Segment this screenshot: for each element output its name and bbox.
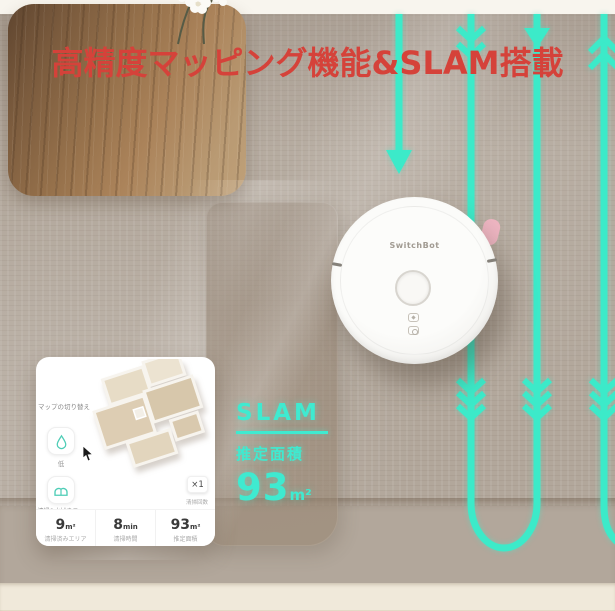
- robot-brand-label: SwitchBot: [331, 241, 498, 250]
- slam-area-unit: m²: [290, 486, 312, 504]
- slam-heading: SLAM: [236, 400, 328, 426]
- mop-mode-button[interactable]: [47, 476, 75, 504]
- stat-clean-time: 8min 清掃時間: [95, 510, 155, 546]
- stat-unit: min: [123, 523, 138, 531]
- slam-area-value: 93: [236, 466, 290, 509]
- clean-count-label: 清掃回数: [175, 498, 219, 506]
- robot-vacuum: SwitchBot: [331, 197, 498, 364]
- power-icon: [408, 326, 419, 335]
- slam-overlay: SLAM 推定面積 93m²: [236, 400, 328, 509]
- water-level-button[interactable]: [47, 427, 75, 455]
- mouse-cursor-icon: [82, 446, 94, 462]
- slam-area-label: 推定面積: [236, 443, 328, 464]
- stat-unit: m²: [190, 523, 200, 531]
- ad-scene: SLAM 推定面積 93m² SwitchBot マップの切り替え: [0, 0, 615, 611]
- bumper-seam: [332, 262, 342, 267]
- lidar-turret: [395, 270, 431, 306]
- app-map-card: マップの切り替え 低 清掃&水拭きモード ×1 清掃回数 9m² 清掃済みエリア…: [36, 357, 215, 546]
- headline-title: 高精度マッピング機能&SLAM搭載: [0, 38, 615, 84]
- stat-label: 清掃時間: [113, 534, 137, 543]
- stat-label: 清掃済みエリア: [44, 534, 86, 543]
- mop-pads-icon: [52, 482, 70, 498]
- stat-cleaned-area: 9m² 清掃済みエリア: [36, 510, 95, 546]
- stat-value: 9: [55, 517, 65, 533]
- down-arrow-icon: [386, 150, 412, 174]
- bumper-seam: [487, 258, 497, 263]
- water-drop-icon: [53, 432, 70, 451]
- slam-underline: [236, 431, 328, 434]
- slam-area-value-row: 93m²: [236, 466, 328, 509]
- floorplan-map[interactable]: [88, 359, 212, 473]
- map-switch-label: マップの切り替え: [38, 403, 90, 413]
- stat-estimated-area: 93m² 推定面積: [155, 510, 215, 546]
- water-level-value: 低: [47, 458, 75, 468]
- stat-value: 93: [171, 517, 190, 533]
- clean-count-chip[interactable]: ×1: [187, 476, 208, 493]
- stat-value: 8: [113, 517, 123, 533]
- stat-unit: m²: [65, 523, 75, 531]
- spot-clean-icon: [408, 313, 419, 322]
- path-line-4: [604, 14, 615, 551]
- stats-row: 9m² 清掃済みエリア 8min 清掃時間 93m² 推定面積: [36, 509, 215, 546]
- stat-label: 推定面積: [173, 534, 197, 543]
